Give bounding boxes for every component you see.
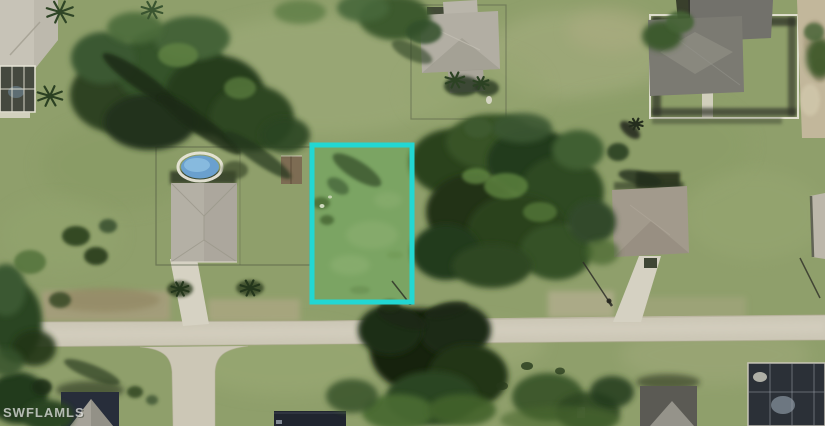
lot-shrub — [320, 215, 334, 225]
lot-light-patch — [374, 192, 402, 208]
tree-highlight — [224, 77, 256, 99]
wall-shadow-right — [788, 17, 796, 116]
pool-deck-sliver — [0, 112, 30, 118]
house-left-facet — [204, 183, 237, 262]
aerial-photo: SWFLAMLSSWFLAMLS — [0, 0, 825, 426]
dirt-blob — [800, 84, 820, 116]
tree — [260, 117, 310, 153]
yard-white-object — [486, 96, 492, 104]
lot-white-dot — [320, 204, 325, 208]
tree — [804, 23, 824, 41]
pole-base — [607, 299, 612, 304]
wall-shadow-bottom — [652, 108, 796, 116]
shrub — [62, 226, 90, 246]
pool-topleft-water — [8, 86, 24, 98]
shrub — [32, 379, 52, 395]
enclosure-white-object — [753, 372, 767, 382]
tree-highlight — [158, 43, 198, 67]
watermark: SWFLAMLS — [3, 405, 85, 420]
tree — [585, 239, 619, 265]
tree — [568, 200, 616, 244]
tree — [552, 130, 604, 170]
wall-south-shadow — [652, 118, 782, 124]
tree — [406, 20, 442, 44]
tree-shadow — [222, 161, 248, 179]
road-tree-fringe — [428, 394, 496, 426]
shrub — [590, 376, 634, 408]
grass-patch — [685, 170, 825, 260]
tree — [274, 0, 326, 24]
lot-mottle — [387, 251, 403, 259]
structure-bottommid-glint — [276, 420, 282, 424]
tree-highlight — [462, 168, 490, 184]
road-tree-fringe — [326, 379, 378, 413]
shrub-dot — [555, 368, 565, 375]
shrub — [146, 395, 158, 405]
tree — [666, 11, 694, 33]
lot-white-dot — [328, 196, 332, 199]
lot-light-patch — [346, 221, 398, 249]
tree — [107, 12, 163, 44]
listing-aerial-photo: SWFLAMLSSWFLAMLS — [0, 0, 825, 426]
shell-strip — [208, 299, 300, 322]
shrub — [99, 219, 117, 233]
lot-light-patch — [330, 255, 370, 275]
tree-highlight — [523, 202, 557, 222]
shrub — [607, 143, 629, 161]
tree — [492, 113, 552, 143]
shrub — [49, 292, 71, 308]
tree-highlight — [484, 173, 528, 199]
tree-highlight — [14, 250, 46, 274]
tree — [464, 118, 492, 138]
shrub-dot — [521, 362, 533, 370]
enclosure-inner-blob — [771, 396, 795, 414]
lot-mottle — [350, 286, 370, 294]
tree — [452, 244, 532, 288]
grass-patch — [567, 8, 657, 52]
shrub — [84, 247, 108, 265]
shrub-driveway-top — [644, 258, 657, 268]
shrub — [127, 386, 143, 398]
shrub-dot — [496, 382, 508, 390]
pool-left-glint — [184, 158, 210, 172]
